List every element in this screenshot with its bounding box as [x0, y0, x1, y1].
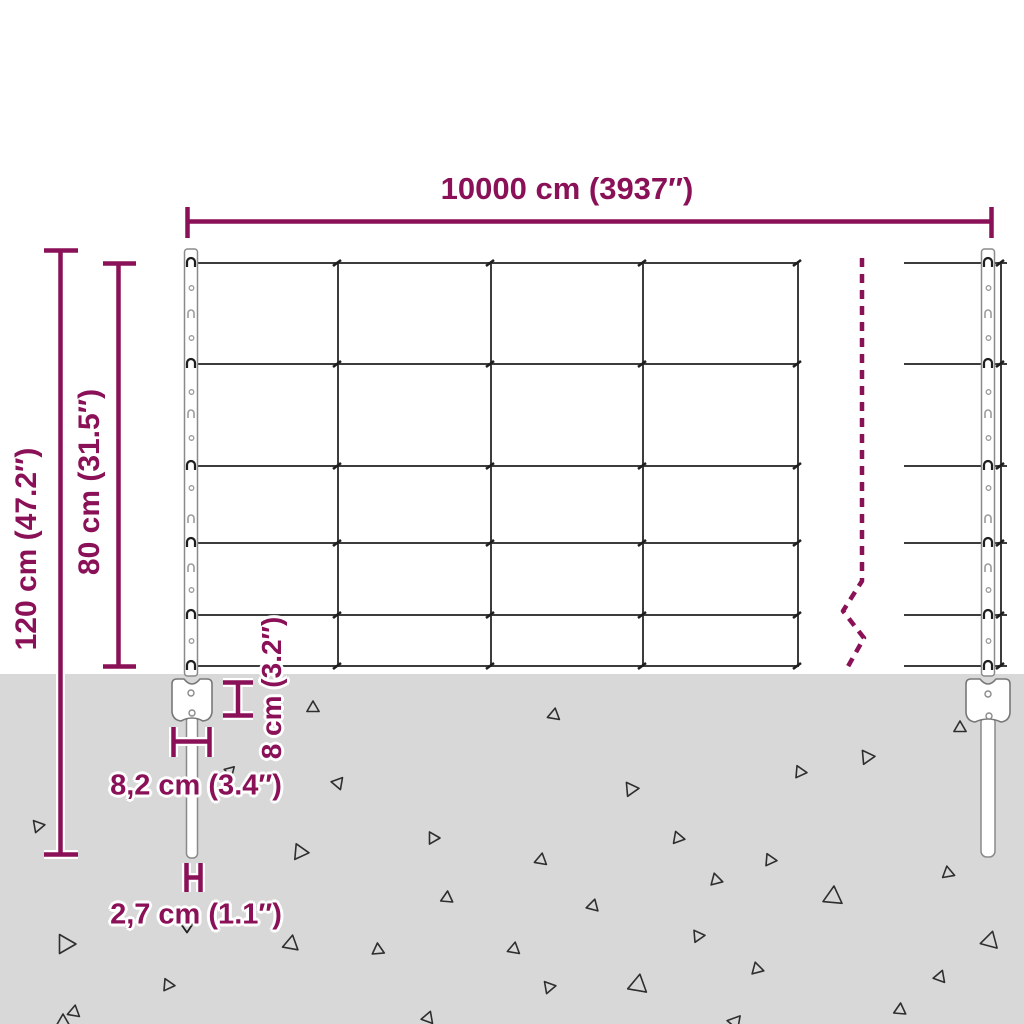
fence-dimension-diagram: 10000 cm (3937″) 120 cm (47.2″) 80 cm (3…: [0, 0, 1024, 1024]
post-hole: [986, 486, 991, 491]
total-width-label: 10000 cm (3937″): [441, 171, 694, 207]
post-hole: [189, 336, 194, 341]
diagram-canvas: [0, 0, 1024, 1024]
total-height-label: 120 cm (47.2″): [10, 448, 44, 651]
anchor-width-label: 8,2 cm (3.4″): [110, 770, 282, 803]
anchor-hole: [985, 691, 991, 697]
post-hole: [189, 286, 194, 291]
post-hole: [986, 436, 991, 441]
anchor-depth-label: 8 cm (3.2″): [256, 617, 288, 760]
post-ground-spike: [981, 716, 995, 857]
anchor-hole: [189, 710, 195, 716]
post-hole: [986, 336, 991, 341]
post-hole: [986, 286, 991, 291]
post-hole: [189, 639, 194, 644]
post-hole: [986, 588, 991, 593]
post-diameter-label: 2,7 cm (1.1″): [110, 899, 282, 932]
mesh-height-label: 80 cm (31.5″): [73, 389, 107, 575]
post-hole: [189, 390, 194, 395]
post-hole: [189, 436, 194, 441]
post-hole: [986, 390, 991, 395]
post-hole: [189, 588, 194, 593]
post-hole: [189, 486, 194, 491]
anchor-hole: [986, 713, 992, 719]
post-hole: [986, 639, 991, 644]
anchor-hole: [188, 690, 194, 696]
ground: [0, 674, 1024, 1024]
